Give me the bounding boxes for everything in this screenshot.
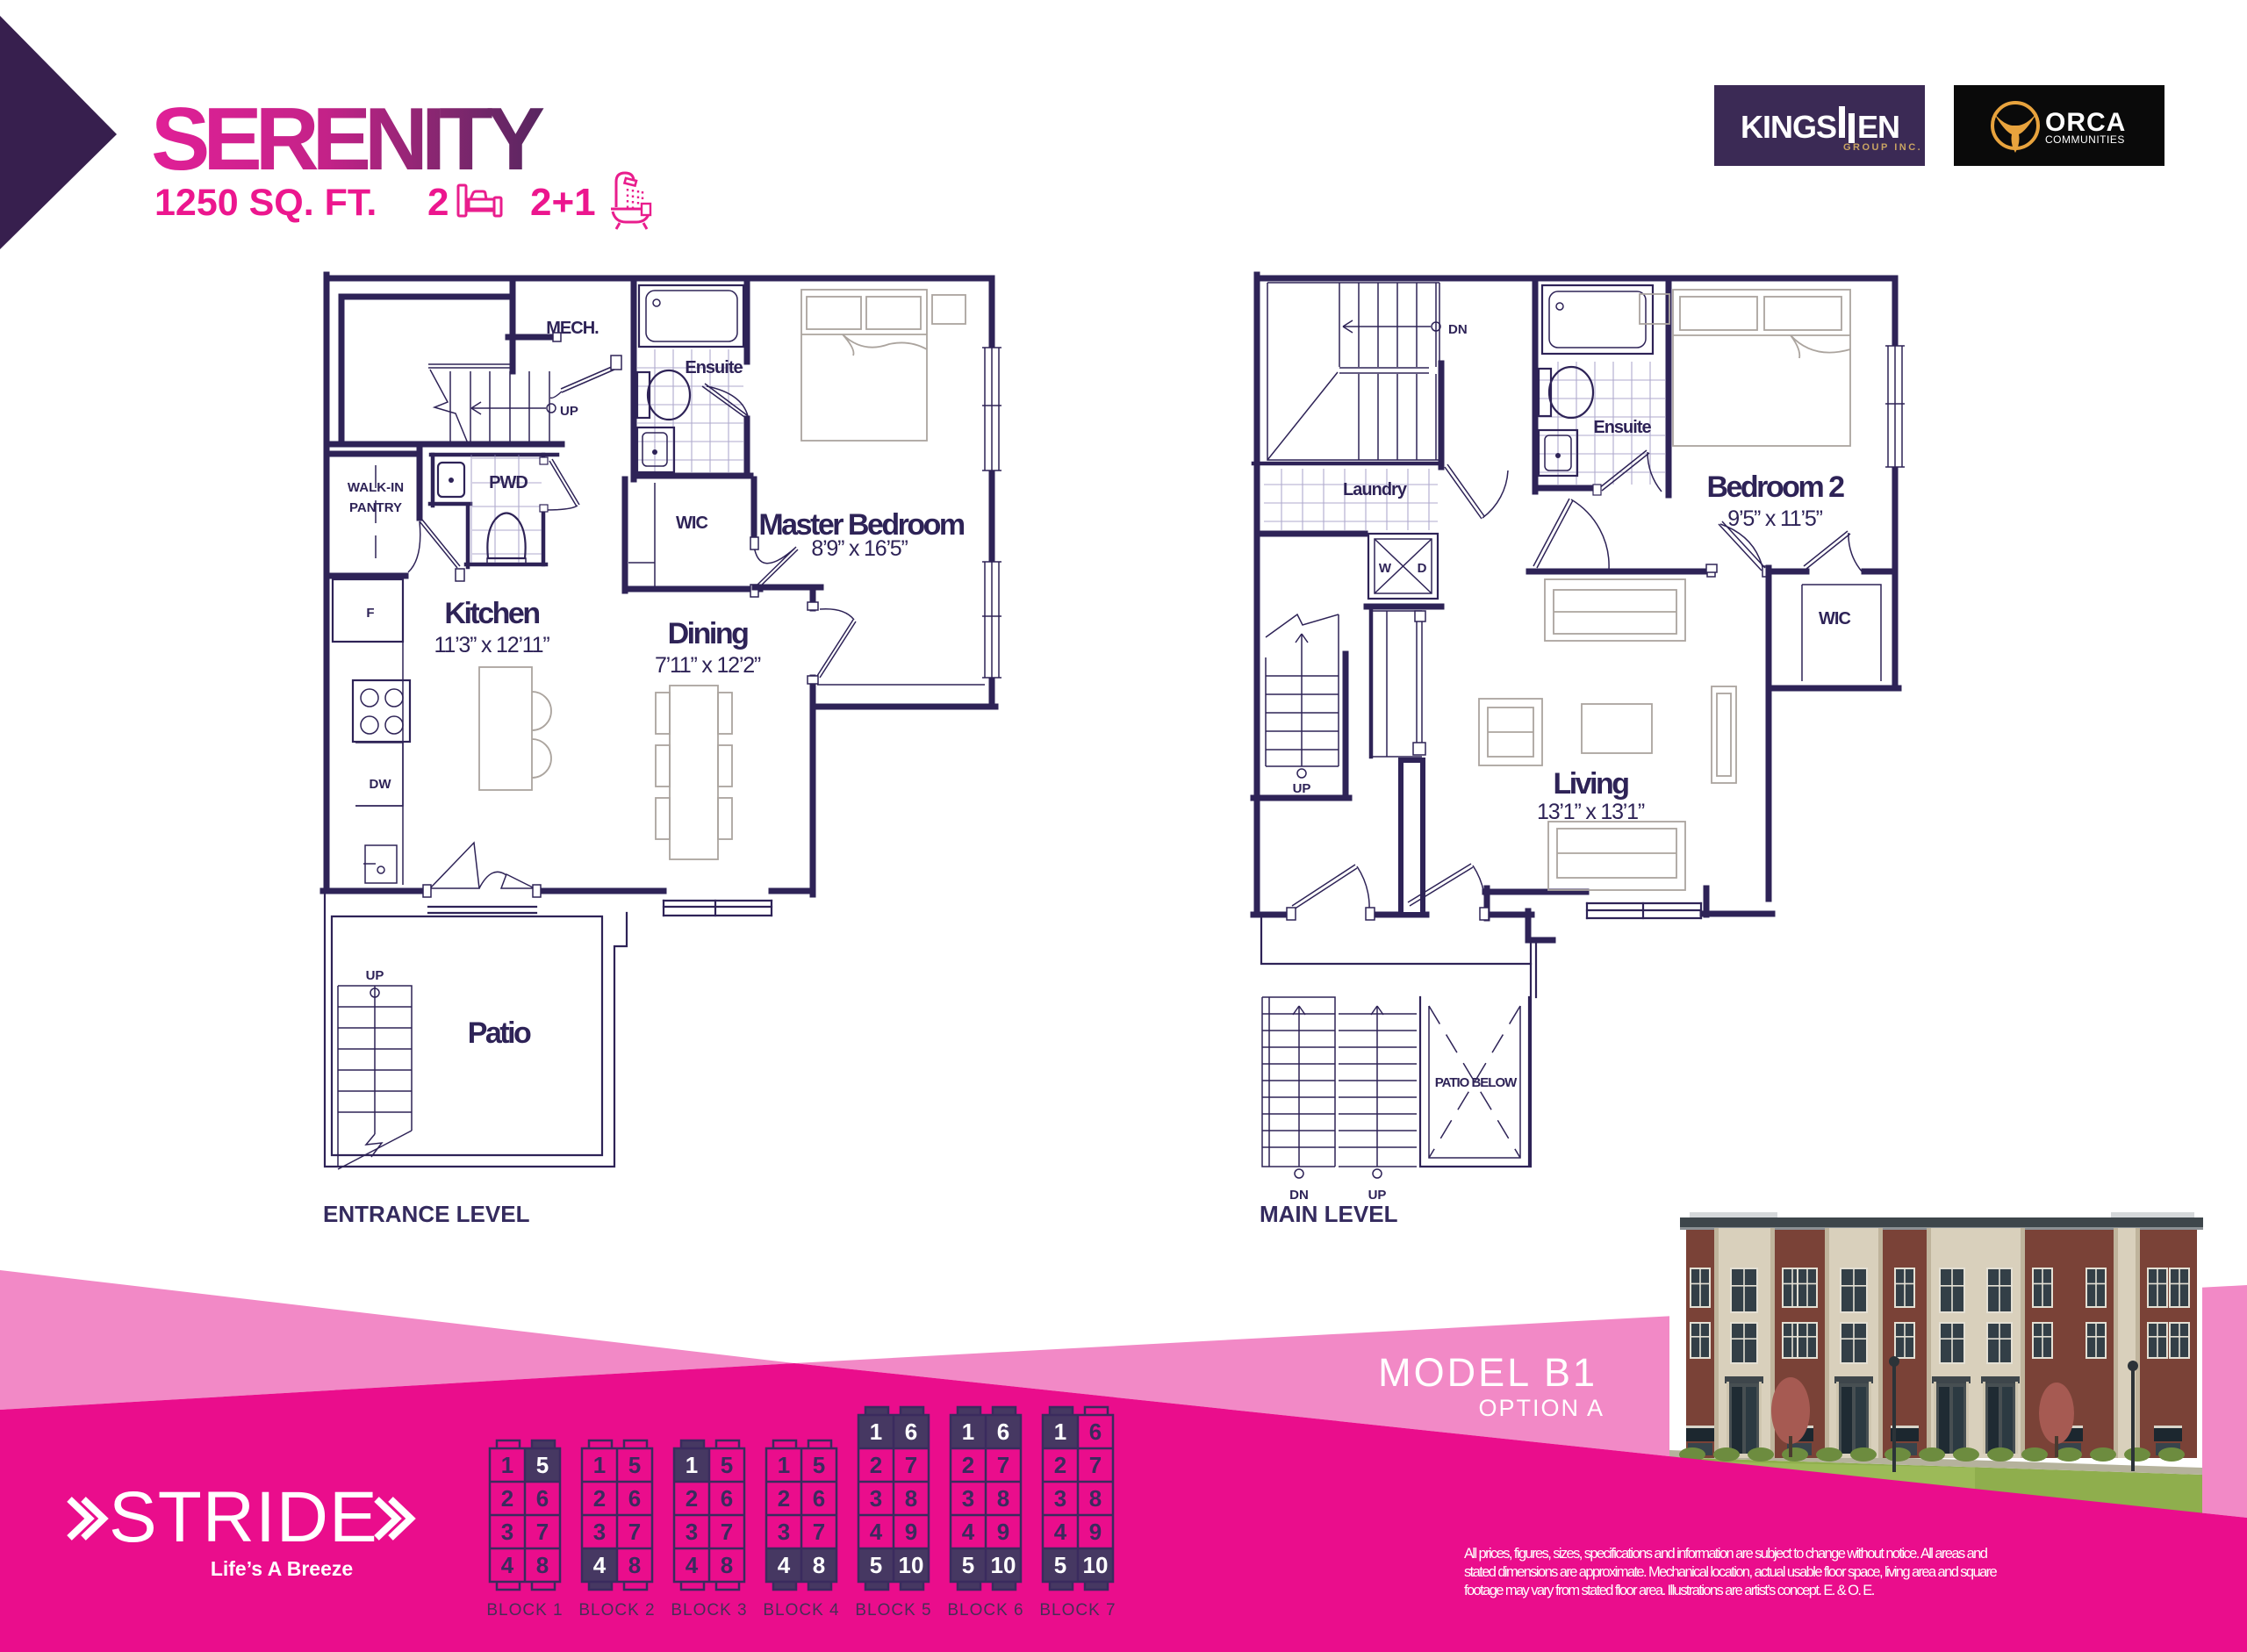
svg-text:6: 6 bbox=[813, 1485, 825, 1512]
svg-text:7: 7 bbox=[905, 1452, 917, 1478]
svg-text:6: 6 bbox=[628, 1485, 641, 1512]
svg-text:Bedroom 2: Bedroom 2 bbox=[1706, 470, 1844, 504]
svg-text:8: 8 bbox=[905, 1485, 917, 1512]
svg-text:Kitchen: Kitchen bbox=[444, 597, 539, 630]
svg-text:stated dimensions are approxim: stated dimensions are approximate. Mecha… bbox=[1464, 1564, 1998, 1580]
svg-text:2: 2 bbox=[686, 1485, 698, 1512]
svg-text:1: 1 bbox=[686, 1452, 698, 1478]
svg-text:GROUP INC.: GROUP INC. bbox=[1843, 142, 1922, 153]
svg-text:Dining: Dining bbox=[668, 617, 748, 650]
svg-text:DN: DN bbox=[1448, 322, 1468, 337]
svg-text:1: 1 bbox=[1054, 1419, 1066, 1445]
svg-text:4: 4 bbox=[1054, 1519, 1067, 1545]
svg-text:9’5” x 11’5”: 9’5” x 11’5” bbox=[1727, 506, 1822, 531]
svg-text:8: 8 bbox=[997, 1485, 1009, 1512]
svg-text:2: 2 bbox=[778, 1485, 790, 1512]
svg-text:BLOCK 5: BLOCK 5 bbox=[855, 1601, 931, 1620]
svg-text:MODEL B1: MODEL B1 bbox=[1378, 1350, 1597, 1395]
svg-text:1: 1 bbox=[870, 1419, 882, 1445]
svg-text:PANTRY: PANTRY bbox=[349, 500, 402, 515]
svg-text:COMMUNITIES: COMMUNITIES bbox=[2045, 133, 2125, 146]
svg-text:footage may vary from stated f: footage may vary from stated floor area.… bbox=[1464, 1583, 1875, 1598]
svg-text:BLOCK 3: BLOCK 3 bbox=[671, 1601, 747, 1620]
svg-text:4: 4 bbox=[870, 1519, 883, 1545]
svg-text:4: 4 bbox=[686, 1552, 699, 1578]
svg-text:8: 8 bbox=[536, 1552, 549, 1578]
svg-text:3: 3 bbox=[686, 1519, 698, 1545]
svg-text:PATIO BELOW: PATIO BELOW bbox=[1435, 1075, 1518, 1090]
svg-text:BLOCK 6: BLOCK 6 bbox=[947, 1601, 1023, 1620]
svg-text:7: 7 bbox=[721, 1519, 733, 1545]
svg-text:1: 1 bbox=[501, 1452, 513, 1478]
svg-text:5: 5 bbox=[813, 1452, 825, 1478]
svg-text:6: 6 bbox=[997, 1419, 1009, 1445]
svg-text:8: 8 bbox=[1089, 1485, 1102, 1512]
svg-text:STRIDE: STRIDE bbox=[109, 1477, 378, 1557]
svg-text:8’9” x 16’5”: 8’9” x 16’5” bbox=[811, 536, 908, 561]
svg-text:F: F bbox=[366, 606, 374, 621]
svg-text:7: 7 bbox=[628, 1519, 641, 1545]
svg-text:7: 7 bbox=[1089, 1452, 1102, 1478]
svg-text:W: W bbox=[1379, 561, 1392, 576]
svg-text:10: 10 bbox=[1083, 1552, 1109, 1578]
svg-text:5: 5 bbox=[870, 1552, 882, 1578]
svg-text:11’3” x 12’11”: 11’3” x 12’11” bbox=[434, 633, 550, 657]
svg-text:DW: DW bbox=[370, 777, 392, 792]
svg-text:Patio: Patio bbox=[468, 1016, 531, 1050]
svg-text:7: 7 bbox=[813, 1519, 825, 1545]
svg-text:4: 4 bbox=[501, 1552, 514, 1578]
svg-text:6: 6 bbox=[1089, 1419, 1102, 1445]
svg-text:WIC: WIC bbox=[676, 514, 707, 533]
svg-text:7: 7 bbox=[536, 1519, 549, 1545]
svg-text:3: 3 bbox=[501, 1519, 513, 1545]
svg-text:2: 2 bbox=[1054, 1452, 1066, 1478]
svg-text:Laundry: Laundry bbox=[1343, 480, 1408, 499]
svg-text:7’11” x 12’2”: 7’11” x 12’2” bbox=[655, 653, 761, 678]
svg-text:BLOCK 1: BLOCK 1 bbox=[486, 1601, 563, 1620]
svg-text:5: 5 bbox=[628, 1452, 641, 1478]
svg-text:5: 5 bbox=[962, 1552, 974, 1578]
svg-text:2: 2 bbox=[870, 1452, 882, 1478]
svg-text:1: 1 bbox=[778, 1452, 790, 1478]
svg-text:WALK-IN: WALK-IN bbox=[348, 480, 404, 495]
svg-text:All prices, figures, sizes, sp: All prices, figures, sizes, specificatio… bbox=[1464, 1546, 1988, 1562]
svg-text:UP: UP bbox=[1293, 781, 1311, 796]
svg-text:Living: Living bbox=[1553, 767, 1628, 801]
svg-text:5: 5 bbox=[721, 1452, 733, 1478]
svg-text:3: 3 bbox=[870, 1485, 882, 1512]
svg-text:SERENITY: SERENITY bbox=[151, 90, 544, 189]
svg-text:ENTRANCE LEVEL: ENTRANCE LEVEL bbox=[323, 1201, 530, 1227]
svg-text:UP: UP bbox=[560, 404, 578, 419]
svg-text:2: 2 bbox=[593, 1485, 606, 1512]
svg-text:1: 1 bbox=[593, 1452, 606, 1478]
svg-text:EN: EN bbox=[1857, 109, 1899, 145]
svg-text:WIC: WIC bbox=[1819, 609, 1850, 628]
svg-text:7: 7 bbox=[997, 1452, 1009, 1478]
svg-text:3: 3 bbox=[593, 1519, 606, 1545]
svg-text:MAIN LEVEL: MAIN LEVEL bbox=[1260, 1201, 1398, 1227]
svg-text:Life’s A Breeze: Life’s A Breeze bbox=[211, 1557, 353, 1580]
svg-text:Ensuite: Ensuite bbox=[685, 358, 743, 377]
svg-text:5: 5 bbox=[1054, 1552, 1066, 1578]
svg-text:OPTION A: OPTION A bbox=[1478, 1395, 1604, 1421]
svg-text:PWD: PWD bbox=[489, 473, 528, 492]
svg-text:2: 2 bbox=[962, 1452, 974, 1478]
svg-text:2+1: 2+1 bbox=[530, 181, 596, 224]
svg-text:9: 9 bbox=[905, 1519, 917, 1545]
svg-text:8: 8 bbox=[721, 1552, 733, 1578]
svg-text:9: 9 bbox=[1089, 1519, 1102, 1545]
svg-text:6: 6 bbox=[536, 1485, 549, 1512]
svg-text:6: 6 bbox=[905, 1419, 917, 1445]
svg-text:4: 4 bbox=[962, 1519, 975, 1545]
svg-text:Ensuite: Ensuite bbox=[1593, 418, 1651, 437]
svg-text:5: 5 bbox=[536, 1452, 549, 1478]
svg-text:UP: UP bbox=[366, 968, 384, 983]
svg-text:8: 8 bbox=[813, 1552, 825, 1578]
svg-text:9: 9 bbox=[997, 1519, 1009, 1545]
svg-text:8: 8 bbox=[628, 1552, 641, 1578]
svg-text:3: 3 bbox=[1054, 1485, 1066, 1512]
svg-text:4: 4 bbox=[778, 1552, 791, 1578]
svg-text:1: 1 bbox=[962, 1419, 974, 1445]
svg-text:BLOCK 2: BLOCK 2 bbox=[578, 1601, 655, 1620]
svg-text:10: 10 bbox=[991, 1552, 1016, 1578]
svg-text:3: 3 bbox=[962, 1485, 974, 1512]
svg-text:6: 6 bbox=[721, 1485, 733, 1512]
svg-text:10: 10 bbox=[899, 1552, 924, 1578]
svg-text:BLOCK 7: BLOCK 7 bbox=[1039, 1601, 1116, 1620]
svg-text:2: 2 bbox=[501, 1485, 513, 1512]
svg-text:4: 4 bbox=[593, 1552, 607, 1578]
svg-text:KINGS: KINGS bbox=[1741, 109, 1836, 145]
svg-text:3: 3 bbox=[778, 1519, 790, 1545]
svg-text:1250 SQ. FT.: 1250 SQ. FT. bbox=[154, 182, 377, 224]
svg-text:13’1” x 13’1”: 13’1” x 13’1” bbox=[1537, 800, 1645, 824]
svg-text:2: 2 bbox=[427, 181, 449, 224]
svg-text:BLOCK 4: BLOCK 4 bbox=[763, 1601, 839, 1620]
svg-text:D: D bbox=[1418, 561, 1427, 576]
